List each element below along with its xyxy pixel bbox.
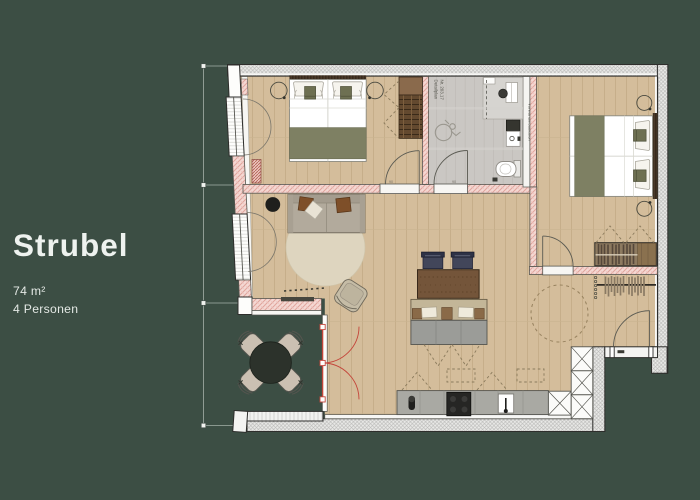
svg-text:90: 90	[389, 180, 393, 184]
svg-text:Strubel: Strubel	[13, 227, 129, 263]
svg-text:Nr. 203.17: Nr. 203.17	[440, 80, 445, 101]
svg-text:74 m²: 74 m²	[13, 284, 46, 298]
svg-text:90: 90	[452, 180, 456, 184]
svg-text:4 Personen: 4 Personen	[13, 302, 78, 316]
svg-text:Detailplan: Detailplan	[434, 80, 439, 100]
